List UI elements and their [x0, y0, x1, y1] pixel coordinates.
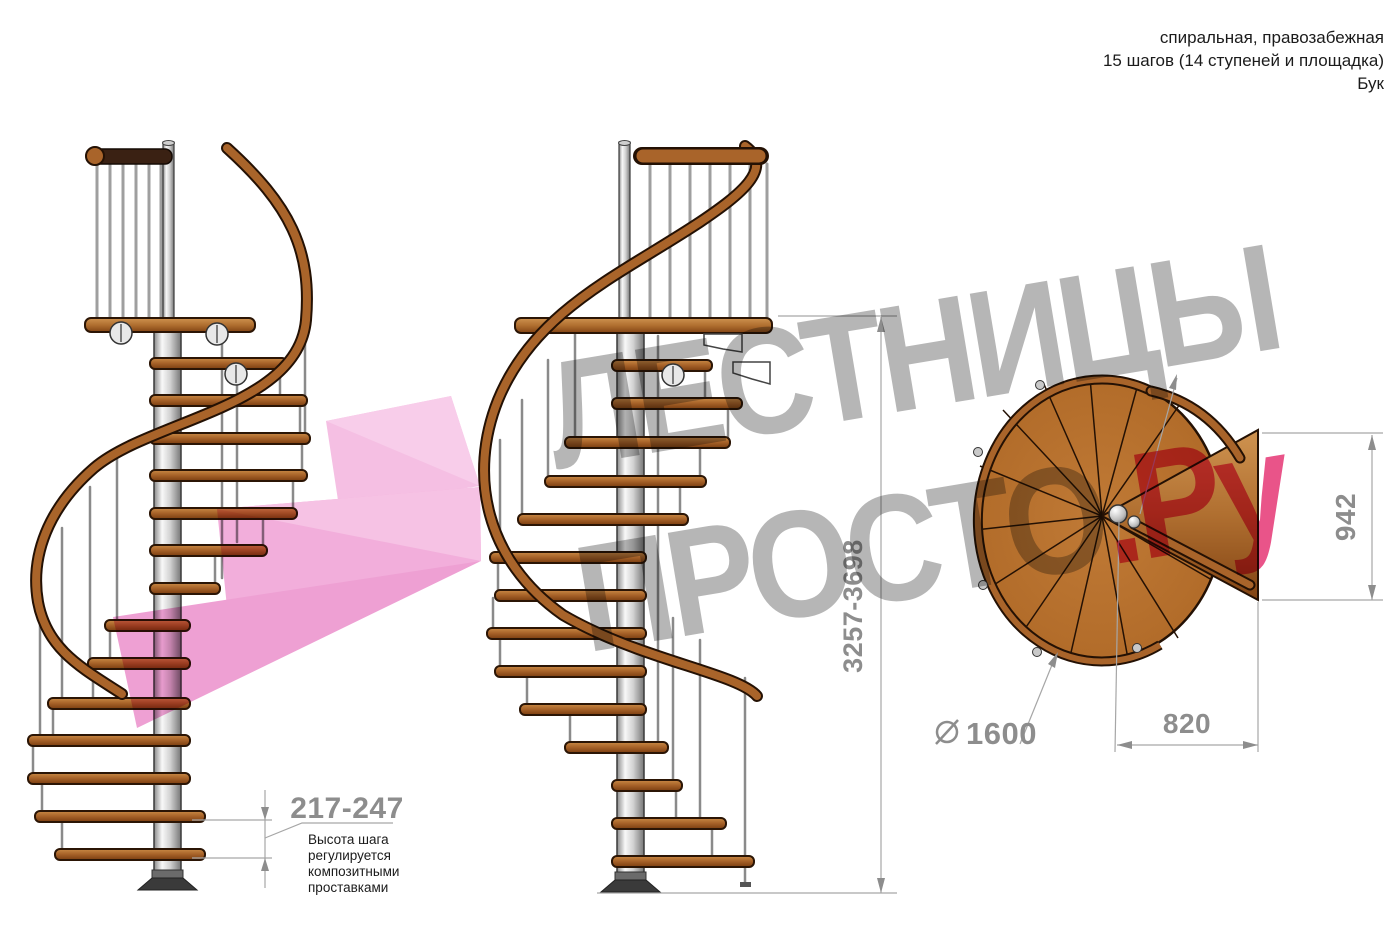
base-flange [601, 880, 660, 892]
top-view-plan [974, 374, 1259, 661]
drawing-page: 3257-3698 217-247 942 820 1600 [0, 0, 1400, 939]
step [545, 476, 706, 487]
top-rail [86, 147, 172, 165]
step [612, 780, 682, 791]
step [612, 360, 712, 371]
step [612, 818, 726, 829]
spec-material: Бук [1103, 72, 1384, 95]
staircase-technical-drawing: 3257-3698 217-247 942 820 1600 [0, 0, 1400, 939]
step [150, 470, 307, 481]
step [28, 773, 190, 784]
step [35, 811, 205, 822]
step [612, 856, 754, 867]
dimension-plan-height: 942 [1262, 433, 1383, 600]
step [150, 433, 310, 444]
base-flange [138, 878, 197, 890]
rail-hub [1128, 516, 1140, 528]
step [150, 583, 220, 594]
step-height-note: Высота шага регулируется композитными пр… [308, 832, 399, 896]
step-height-label: 217-247 [290, 792, 404, 825]
step [495, 590, 646, 601]
step [55, 849, 205, 860]
spec-header: спиральная, правозабежная 15 шагов (14 с… [1103, 26, 1384, 95]
step [612, 398, 742, 409]
step [495, 666, 646, 677]
plan-height-label: 942 [1330, 493, 1361, 541]
dimension-total-height: 3257-3698 [778, 316, 897, 893]
plan-width-label: 820 [1163, 708, 1211, 739]
dimension-diameter: 1600 [936, 652, 1058, 751]
rail-end-cap [86, 147, 104, 165]
step [150, 358, 287, 369]
railing-balusters [97, 164, 161, 318]
pole-top-ball [1109, 505, 1127, 523]
side-view-rotated [484, 141, 897, 894]
spec-type: спиральная, правозабежная [1103, 26, 1384, 49]
step [518, 514, 688, 525]
step [520, 704, 646, 715]
step [565, 437, 730, 448]
total-height-label: 3257-3698 [838, 539, 868, 673]
baluster-foot [740, 882, 751, 887]
diameter-label: 1600 [966, 716, 1037, 751]
step [28, 735, 190, 746]
spec-steps: 15 шагов (14 ступеней и площадка) [1103, 49, 1384, 72]
step [565, 742, 668, 753]
diameter-symbol [936, 720, 958, 744]
